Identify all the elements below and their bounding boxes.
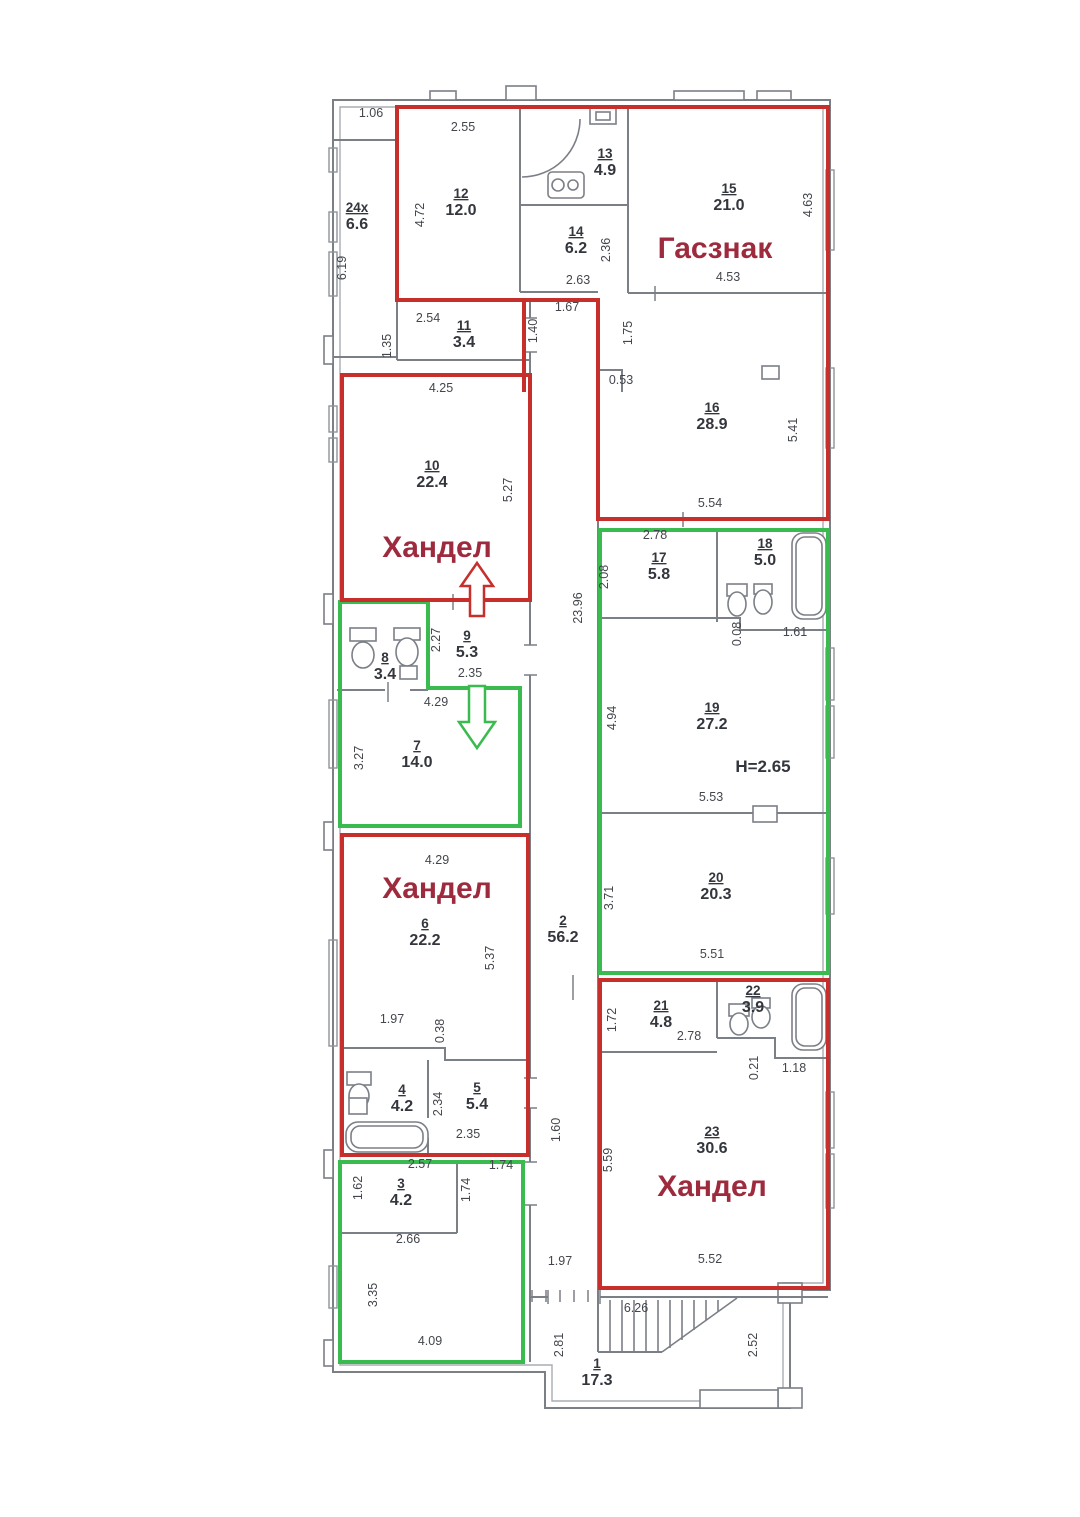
room-number-7: 7 [413,738,421,753]
dimension-label-17: 5.27 [501,478,515,502]
room-area-16: 28.9 [696,416,727,433]
dimension-label-54: 2.52 [746,1333,760,1357]
room-area-17: 5.8 [648,566,670,583]
room-number-10: 10 [424,458,439,473]
dimension-label-21: 1.61 [783,625,807,639]
shower-arc [522,119,580,177]
dimension-label-13: 4.53 [716,270,740,284]
room-area-23: 30.6 [696,1140,727,1157]
room-area-2: 56.2 [547,929,578,946]
dimension-label-7: 1.67 [555,300,579,314]
dimension-label-45: 1.74 [459,1178,473,1202]
dimension-label-35: 2.34 [431,1092,445,1116]
toilet-icon [350,628,376,641]
room-number-11: 11 [457,318,472,333]
room-number-23: 23 [704,1124,720,1139]
dimension-label-26: 3.27 [352,746,366,770]
dimension-label-46: 1.74 [489,1158,513,1172]
room-area-1: 17.3 [581,1372,612,1389]
dimension-label-28: 5.53 [699,790,723,804]
room-area-3: 4.2 [390,1192,412,1209]
dimension-label-11: 2.36 [599,238,613,262]
dimension-label-15: 5.54 [698,496,722,510]
room-number-18: 18 [757,536,773,551]
dimension-label-9: 1.75 [621,321,635,345]
room-area-24x: 6.6 [346,216,368,233]
dimension-label-34: 0.38 [433,1019,447,1043]
unit-name-label-0: Гасзнак [658,232,774,265]
dimension-label-32: 5.37 [483,946,497,970]
room-area-22: 3.9 [742,999,764,1016]
room-number-22: 22 [745,983,760,998]
toilet-icon [347,1072,371,1085]
dimension-label-52: 6.26 [624,1301,648,1315]
room-area-14: 6.2 [565,240,587,257]
dimension-label-27: 4.94 [605,706,619,730]
dimension-label-22: 23.96 [571,592,585,623]
dimension-label-31: 4.29 [425,853,449,867]
dimension-label-41: 5.59 [601,1148,615,1172]
room-area-8: 3.4 [374,666,396,683]
room-area-12: 12.0 [445,202,476,219]
room-number-2: 2 [559,913,567,928]
room-number-15: 15 [721,181,737,196]
room-area-19: 27.2 [696,716,727,733]
basin-icon [400,666,417,679]
dimension-label-20: 0.08 [730,622,744,646]
dimension-label-36: 2.35 [456,1127,480,1141]
room-number-17: 17 [651,550,666,565]
room-number-4: 4 [398,1082,406,1097]
dimension-label-38: 2.78 [677,1029,701,1043]
room-number-5: 5 [473,1080,481,1095]
red-entry-arrow-up [461,563,493,616]
room-number-16: 16 [704,400,720,415]
dimension-label-29: 3.71 [602,886,616,910]
unit-name-label-2: Хандел [382,872,492,905]
room-number-14: 14 [568,224,584,239]
tick-marks [388,286,683,1304]
room-area-11: 3.4 [453,334,475,351]
room-number-24x: 24x [346,200,369,215]
floor-plan-page: 117.3256.234.244.255.4622.2714.083.495.3… [0,0,1080,1517]
room-number-19: 19 [704,700,719,715]
room-area-5: 5.4 [466,1096,488,1113]
room-number-21: 21 [653,998,669,1013]
room-number-9: 9 [463,628,471,643]
room-number-8: 8 [381,650,389,665]
dimension-label-42: 5.52 [698,1252,722,1266]
dimension-label-10: 0.53 [609,373,633,387]
dimension-label-53: 2.81 [552,1333,566,1357]
dimension-label-43: 2.57 [408,1157,432,1171]
room-area-20: 20.3 [700,886,731,903]
shaft-square [753,806,777,822]
dimension-label-24: 2.35 [458,666,482,680]
room-number-13: 13 [597,146,613,161]
dimension-label-1: 6.19 [335,256,349,280]
dimension-label-23: 2.27 [429,628,443,652]
annotations-layer: H=2.65 [735,757,790,776]
dimension-label-33: 1.97 [380,1012,404,1026]
dimension-label-50: 1.60 [549,1118,563,1142]
room-area-15: 21.0 [713,197,744,214]
dimension-label-49: 4.09 [418,1334,442,1348]
green-unit-bottom-left [340,1162,523,1362]
room-number-3: 3 [397,1176,405,1191]
dimension-label-5: 1.35 [380,334,394,358]
dimension-label-18: 2.78 [643,528,667,542]
dimension-label-2: 2.55 [451,120,475,134]
room-number-6: 6 [421,916,429,931]
dimension-label-44: 1.62 [351,1176,365,1200]
dimension-label-14: 5.41 [786,418,800,442]
dimension-label-12: 4.63 [801,193,815,217]
dimension-label-6: 1.40 [526,319,540,343]
room-number-20: 20 [708,870,723,885]
room-area-4: 4.2 [391,1098,413,1115]
green-entry-arrow-down [459,686,495,748]
floor-plan-svg: 117.3256.234.244.255.4622.2714.083.495.3… [0,0,1080,1517]
dimension-label-0: 1.06 [359,106,383,120]
dimension-label-37: 1.72 [605,1008,619,1032]
dimension-label-3: 4.72 [413,203,427,227]
dimension-label-25: 4.29 [424,695,448,709]
dimension-label-48: 3.35 [366,1283,380,1307]
dimension-label-51: 1.97 [548,1254,572,1268]
dimension-label-39: 0.21 [747,1056,761,1080]
dimension-label-4: 2.54 [416,311,440,325]
dimension-label-30: 5.51 [700,947,724,961]
room-area-6: 22.2 [409,932,440,949]
basin-icon [349,1098,367,1114]
room-area-21: 4.8 [650,1014,672,1031]
dimension-label-16: 4.25 [429,381,453,395]
shaft-square [762,366,779,379]
room-area-13: 4.9 [594,162,616,179]
dimension-label-40: 1.18 [782,1061,806,1075]
room-area-18: 5.0 [754,552,776,569]
room-area-10: 22.4 [416,474,447,491]
dimension-label-19: 2.08 [597,565,611,589]
dimension-label-8: 2.63 [566,273,590,287]
room-number-1: 1 [593,1356,601,1371]
room-area-7: 14.0 [401,754,432,771]
room-area-9: 5.3 [456,644,478,661]
ceiling-height-annotation: H=2.65 [735,757,790,776]
room-number-12: 12 [453,186,468,201]
unit-name-label-1: Хандел [382,531,492,564]
unit-name-label-3: Хандел [657,1170,767,1203]
dimension-label-47: 2.66 [396,1232,420,1246]
